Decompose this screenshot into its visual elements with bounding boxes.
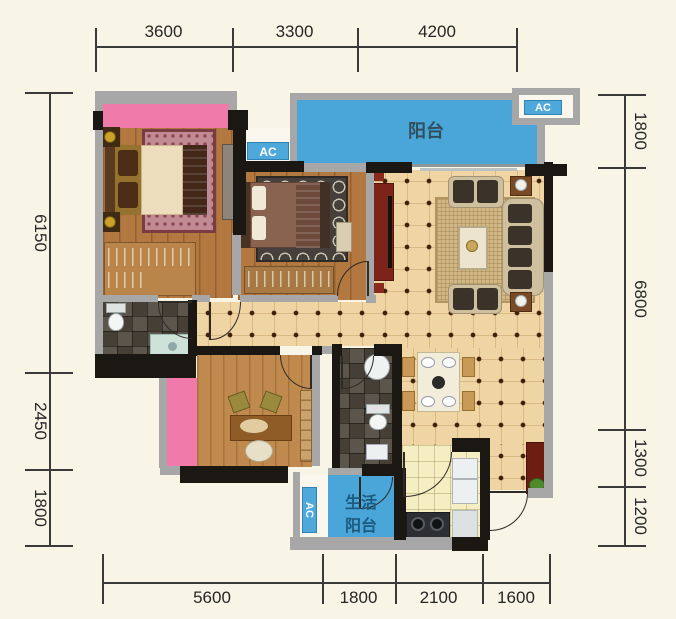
wall-segment — [159, 378, 167, 468]
dim-label-right: 1200 — [630, 478, 650, 554]
wall-segment — [180, 466, 288, 483]
washer — [366, 444, 388, 460]
toilet-tank — [366, 404, 390, 414]
pillow — [118, 182, 138, 208]
bed-blanket — [183, 145, 207, 215]
wall-segment — [452, 438, 482, 452]
wall-segment — [197, 346, 280, 355]
bed-mattress — [141, 145, 183, 215]
wardrobe-hangers — [248, 271, 330, 287]
dim-label-bottom: 5600 — [102, 588, 322, 608]
wall-segment — [240, 295, 338, 302]
dim-tick — [25, 372, 73, 374]
dim-label-left: 1800 — [30, 470, 50, 546]
desk-lamp-glow — [240, 419, 268, 433]
wall-segment — [366, 162, 412, 173]
sofa-cushion — [508, 248, 532, 267]
ac-label-service: AC — [302, 487, 317, 533]
sofa-cushion — [508, 226, 532, 245]
wall-column — [312, 346, 322, 355]
balcony-label: 阳台 — [402, 120, 450, 142]
kitchen-counter — [452, 510, 478, 538]
wall-segment — [544, 268, 553, 490]
wall-segment — [233, 115, 246, 235]
dining-chair — [462, 357, 475, 377]
ac-label-top-middle: AC — [247, 142, 289, 160]
pillow — [252, 216, 266, 240]
fridge-door-line — [452, 478, 478, 480]
plate — [442, 396, 456, 407]
wall-segment — [290, 537, 454, 550]
dim-label-top: 4200 — [357, 22, 517, 42]
wall-segment — [312, 348, 320, 466]
sofa-cushion — [508, 270, 532, 289]
wall-segment — [332, 348, 340, 468]
study-stool — [245, 440, 273, 462]
lamp — [104, 131, 116, 143]
pillow — [252, 186, 266, 210]
burner — [411, 517, 425, 531]
wall-segment — [95, 295, 158, 302]
dim-label-right: 6800 — [630, 261, 650, 337]
wall-segment — [290, 93, 546, 100]
plant — [515, 295, 527, 307]
wall-segment — [452, 537, 488, 551]
shower-head — [168, 342, 177, 351]
dining-chair — [462, 391, 475, 411]
wall-segment — [369, 295, 376, 303]
dim-label-bottom: 2100 — [395, 588, 482, 608]
dim-tick — [25, 92, 73, 94]
toilet — [108, 313, 124, 331]
dim-line-right — [624, 95, 626, 546]
sliding-door-track — [412, 164, 525, 167]
sofa-cushion — [453, 288, 474, 310]
dim-label-bottom: 1800 — [322, 588, 395, 608]
dim-label-left: 2450 — [30, 383, 50, 459]
wall-segment — [95, 354, 196, 378]
dim-label-top: 3300 — [232, 22, 357, 42]
ac-label-top-right: AC — [524, 100, 562, 115]
wardrobe-hangers — [108, 272, 142, 288]
wall-segment — [95, 91, 237, 104]
bed2-blanket — [296, 182, 320, 248]
fridge — [452, 458, 478, 504]
door-arc-entrance — [490, 493, 528, 531]
wall-segment — [302, 163, 366, 172]
pillow — [118, 150, 138, 176]
wall-segment — [293, 472, 300, 542]
toilet-tank — [106, 303, 126, 313]
study-bay-window — [167, 378, 197, 466]
dining-chair — [402, 391, 415, 411]
dining-chair — [402, 357, 415, 377]
study-shelf — [300, 390, 312, 462]
master-bay-window — [100, 103, 233, 130]
wall-segment — [238, 161, 304, 172]
service-balcony-label-line1: 生活 — [330, 492, 392, 515]
wall-segment — [290, 93, 297, 167]
wall-segment — [480, 438, 490, 540]
wardrobe-hangers — [108, 248, 192, 266]
dim-label-left: 6150 — [30, 195, 50, 271]
dim-line-top — [95, 46, 518, 48]
center-dish — [432, 376, 445, 389]
toilet — [369, 414, 387, 430]
wall-segment — [362, 464, 394, 476]
dim-label-top: 3600 — [95, 22, 232, 42]
floor-plan: 3600 3300 4200 6150 2450 1800 1800 6800 … — [0, 0, 676, 619]
sofa-cushion — [508, 204, 532, 223]
dim-label-right: 1800 — [630, 93, 650, 169]
plant — [515, 179, 527, 191]
bed2-footboard — [320, 182, 330, 248]
wall-column — [93, 111, 103, 130]
bed-headboard — [105, 144, 115, 216]
wall-segment — [544, 162, 553, 272]
wall-segment — [232, 233, 241, 295]
sofa-cushion — [477, 180, 498, 203]
dim-label-bottom: 1600 — [482, 588, 550, 608]
tv — [388, 196, 392, 268]
service-balcony-label-line2: 阳台 — [330, 515, 392, 538]
plate — [421, 396, 435, 407]
plate — [442, 357, 456, 368]
plate — [421, 357, 435, 368]
wall-segment — [95, 295, 103, 361]
bedside-bench — [336, 222, 352, 252]
tea-set — [466, 240, 478, 252]
wall-segment — [528, 488, 553, 498]
sofa-cushion — [453, 180, 474, 203]
burner — [430, 517, 444, 531]
sliding-door-panel — [420, 168, 517, 171]
wall-segment — [392, 348, 402, 470]
lamp — [104, 216, 116, 228]
sofa-cushion — [477, 288, 498, 310]
